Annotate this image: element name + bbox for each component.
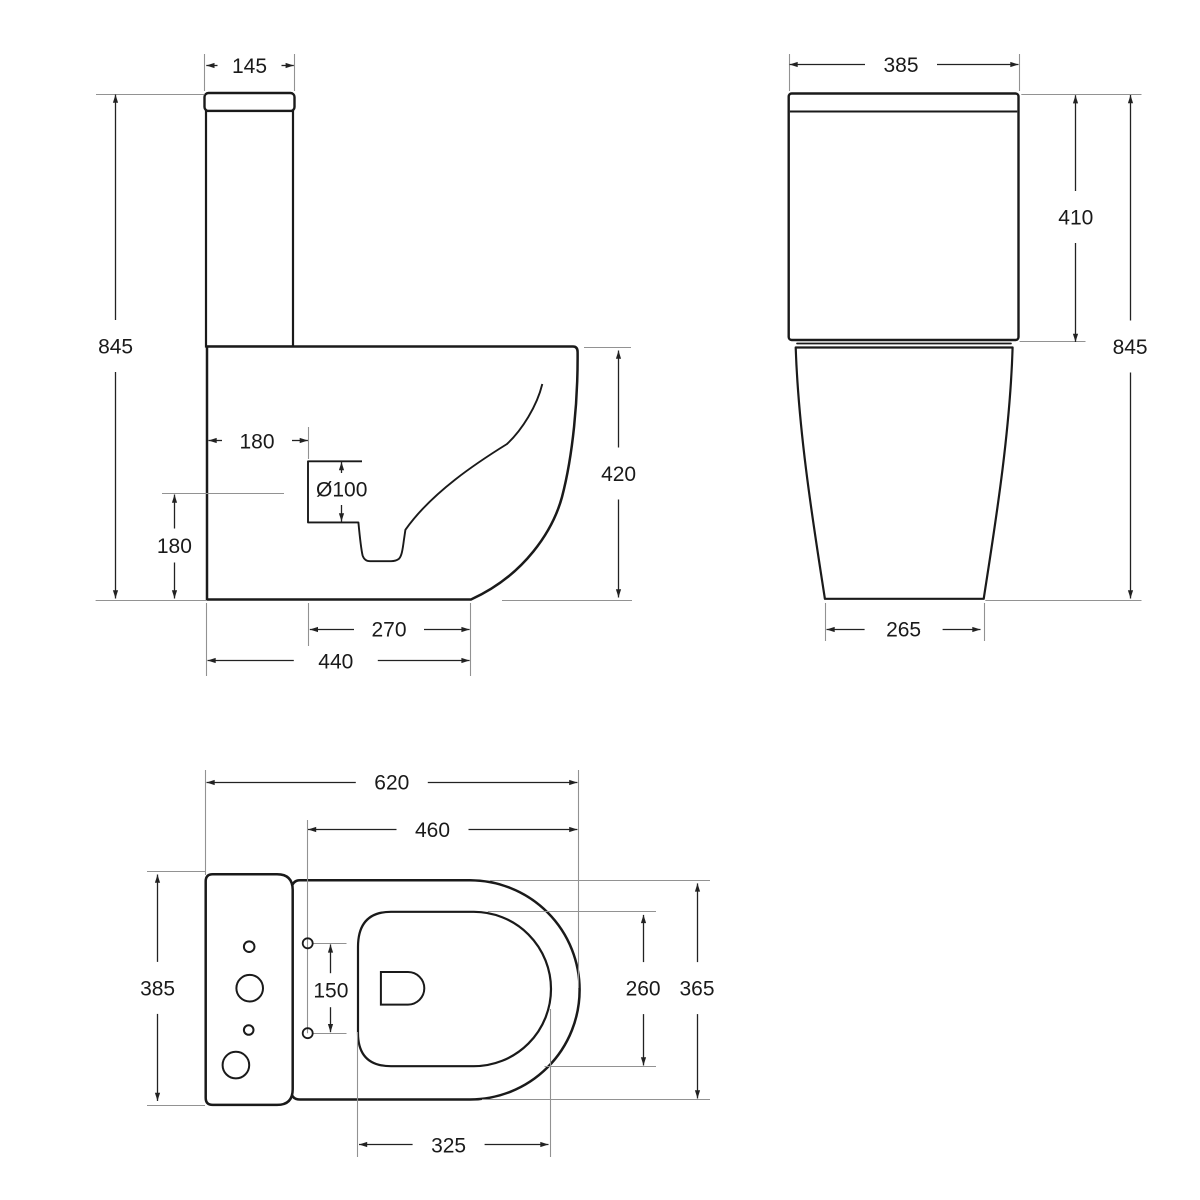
svg-text:265: 265 — [886, 619, 921, 642]
svg-text:845: 845 — [1113, 336, 1148, 359]
svg-text:145: 145 — [232, 55, 267, 78]
svg-text:385: 385 — [140, 977, 175, 1000]
svg-text:620: 620 — [374, 772, 409, 795]
svg-text:260: 260 — [626, 978, 661, 1001]
svg-text:460: 460 — [415, 819, 450, 842]
svg-text:420: 420 — [601, 463, 636, 486]
svg-text:410: 410 — [1058, 207, 1093, 230]
svg-text:180: 180 — [157, 535, 192, 558]
svg-text:Ø100: Ø100 — [316, 479, 367, 502]
svg-text:150: 150 — [313, 980, 348, 1003]
svg-text:365: 365 — [679, 978, 714, 1001]
svg-text:845: 845 — [98, 336, 133, 359]
svg-text:385: 385 — [883, 54, 918, 77]
svg-text:270: 270 — [371, 619, 406, 642]
svg-text:325: 325 — [431, 1134, 466, 1157]
svg-text:180: 180 — [239, 430, 274, 453]
svg-text:440: 440 — [318, 650, 353, 673]
